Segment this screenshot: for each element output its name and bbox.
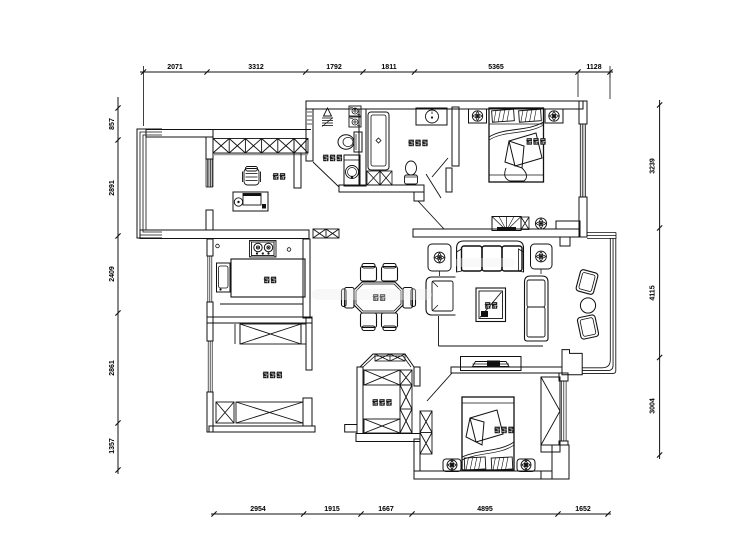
svg-text:2071: 2071 bbox=[167, 64, 183, 71]
svg-text:4115: 4115 bbox=[650, 285, 657, 300]
svg-text:1128: 1128 bbox=[586, 64, 601, 71]
svg-text:1667: 1667 bbox=[378, 506, 394, 513]
svg-text:1811: 1811 bbox=[381, 64, 396, 71]
svg-text:1792: 1792 bbox=[326, 64, 342, 71]
svg-text:857: 857 bbox=[109, 118, 116, 130]
svg-text:3312: 3312 bbox=[248, 64, 264, 71]
svg-text:3239: 3239 bbox=[650, 158, 657, 174]
svg-text:2861: 2861 bbox=[109, 360, 116, 376]
svg-text:5365: 5365 bbox=[488, 64, 504, 71]
svg-text:2954: 2954 bbox=[250, 506, 266, 513]
svg-text:2409: 2409 bbox=[109, 266, 116, 282]
svg-text:3004: 3004 bbox=[650, 398, 657, 414]
svg-text:1357: 1357 bbox=[109, 438, 116, 454]
svg-text:1652: 1652 bbox=[575, 506, 591, 513]
svg-text:4895: 4895 bbox=[477, 506, 493, 513]
svg-text:1915: 1915 bbox=[324, 506, 340, 513]
svg-text:2891: 2891 bbox=[109, 180, 116, 196]
